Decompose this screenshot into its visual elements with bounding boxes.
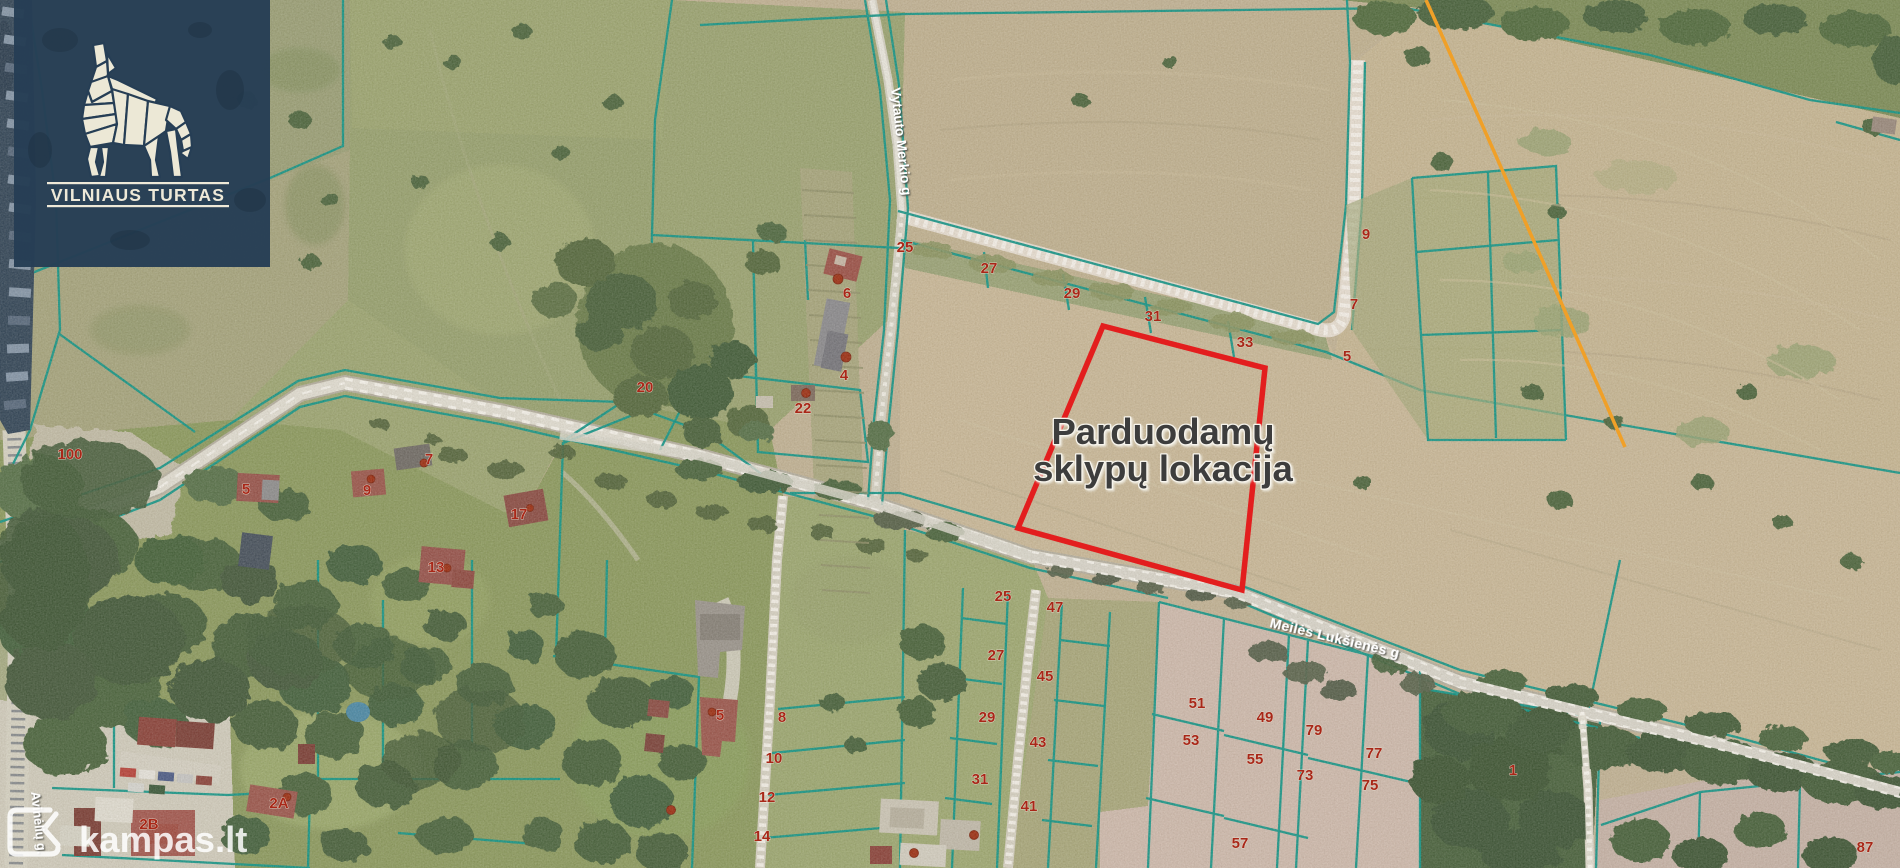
svg-text:20: 20 (637, 379, 654, 396)
svg-text:29: 29 (979, 709, 996, 726)
svg-text:41: 41 (1021, 798, 1038, 815)
svg-text:29: 29 (1064, 285, 1081, 302)
svg-text:Parduodamų: Parduodamų (1051, 411, 1274, 452)
svg-text:12: 12 (759, 789, 776, 806)
svg-text:10: 10 (766, 750, 783, 767)
svg-text:79: 79 (1306, 722, 1323, 739)
svg-text:5: 5 (1343, 348, 1351, 365)
svg-text:VILNIAUS TURTAS: VILNIAUS TURTAS (51, 185, 225, 205)
svg-text:31: 31 (972, 771, 989, 788)
svg-text:55: 55 (1247, 751, 1264, 768)
svg-text:9: 9 (363, 482, 371, 499)
svg-text:7: 7 (1350, 296, 1358, 313)
svg-text:8: 8 (778, 709, 786, 726)
svg-text:47: 47 (1047, 599, 1064, 616)
svg-text:25: 25 (995, 588, 1012, 605)
svg-text:kampas.lt: kampas.lt (79, 819, 247, 860)
svg-text:27: 27 (981, 260, 998, 277)
svg-text:25: 25 (897, 239, 914, 256)
svg-text:22: 22 (795, 400, 812, 417)
svg-text:1: 1 (1509, 762, 1517, 779)
svg-text:4: 4 (840, 367, 849, 384)
svg-text:sklypų lokacija: sklypų lokacija (1033, 448, 1293, 489)
svg-text:5: 5 (242, 481, 250, 498)
svg-text:100: 100 (57, 446, 82, 463)
svg-text:87: 87 (1857, 839, 1874, 856)
svg-text:9: 9 (1362, 226, 1370, 243)
svg-text:13: 13 (428, 559, 445, 576)
svg-text:45: 45 (1037, 668, 1054, 685)
svg-text:14: 14 (754, 828, 771, 845)
svg-text:27: 27 (988, 647, 1005, 664)
svg-text:6: 6 (843, 285, 851, 302)
svg-text:17: 17 (511, 506, 528, 523)
svg-text:7: 7 (425, 451, 433, 468)
svg-text:31: 31 (1145, 308, 1162, 325)
svg-text:2A: 2A (269, 795, 288, 812)
svg-text:77: 77 (1366, 745, 1383, 762)
svg-text:73: 73 (1297, 767, 1314, 784)
svg-text:5: 5 (716, 707, 724, 724)
svg-text:53: 53 (1183, 732, 1200, 749)
svg-text:75: 75 (1362, 777, 1379, 794)
svg-text:57: 57 (1232, 835, 1249, 852)
svg-text:51: 51 (1189, 695, 1206, 712)
svg-text:43: 43 (1030, 734, 1047, 751)
svg-text:49: 49 (1257, 709, 1274, 726)
svg-text:33: 33 (1237, 334, 1254, 351)
